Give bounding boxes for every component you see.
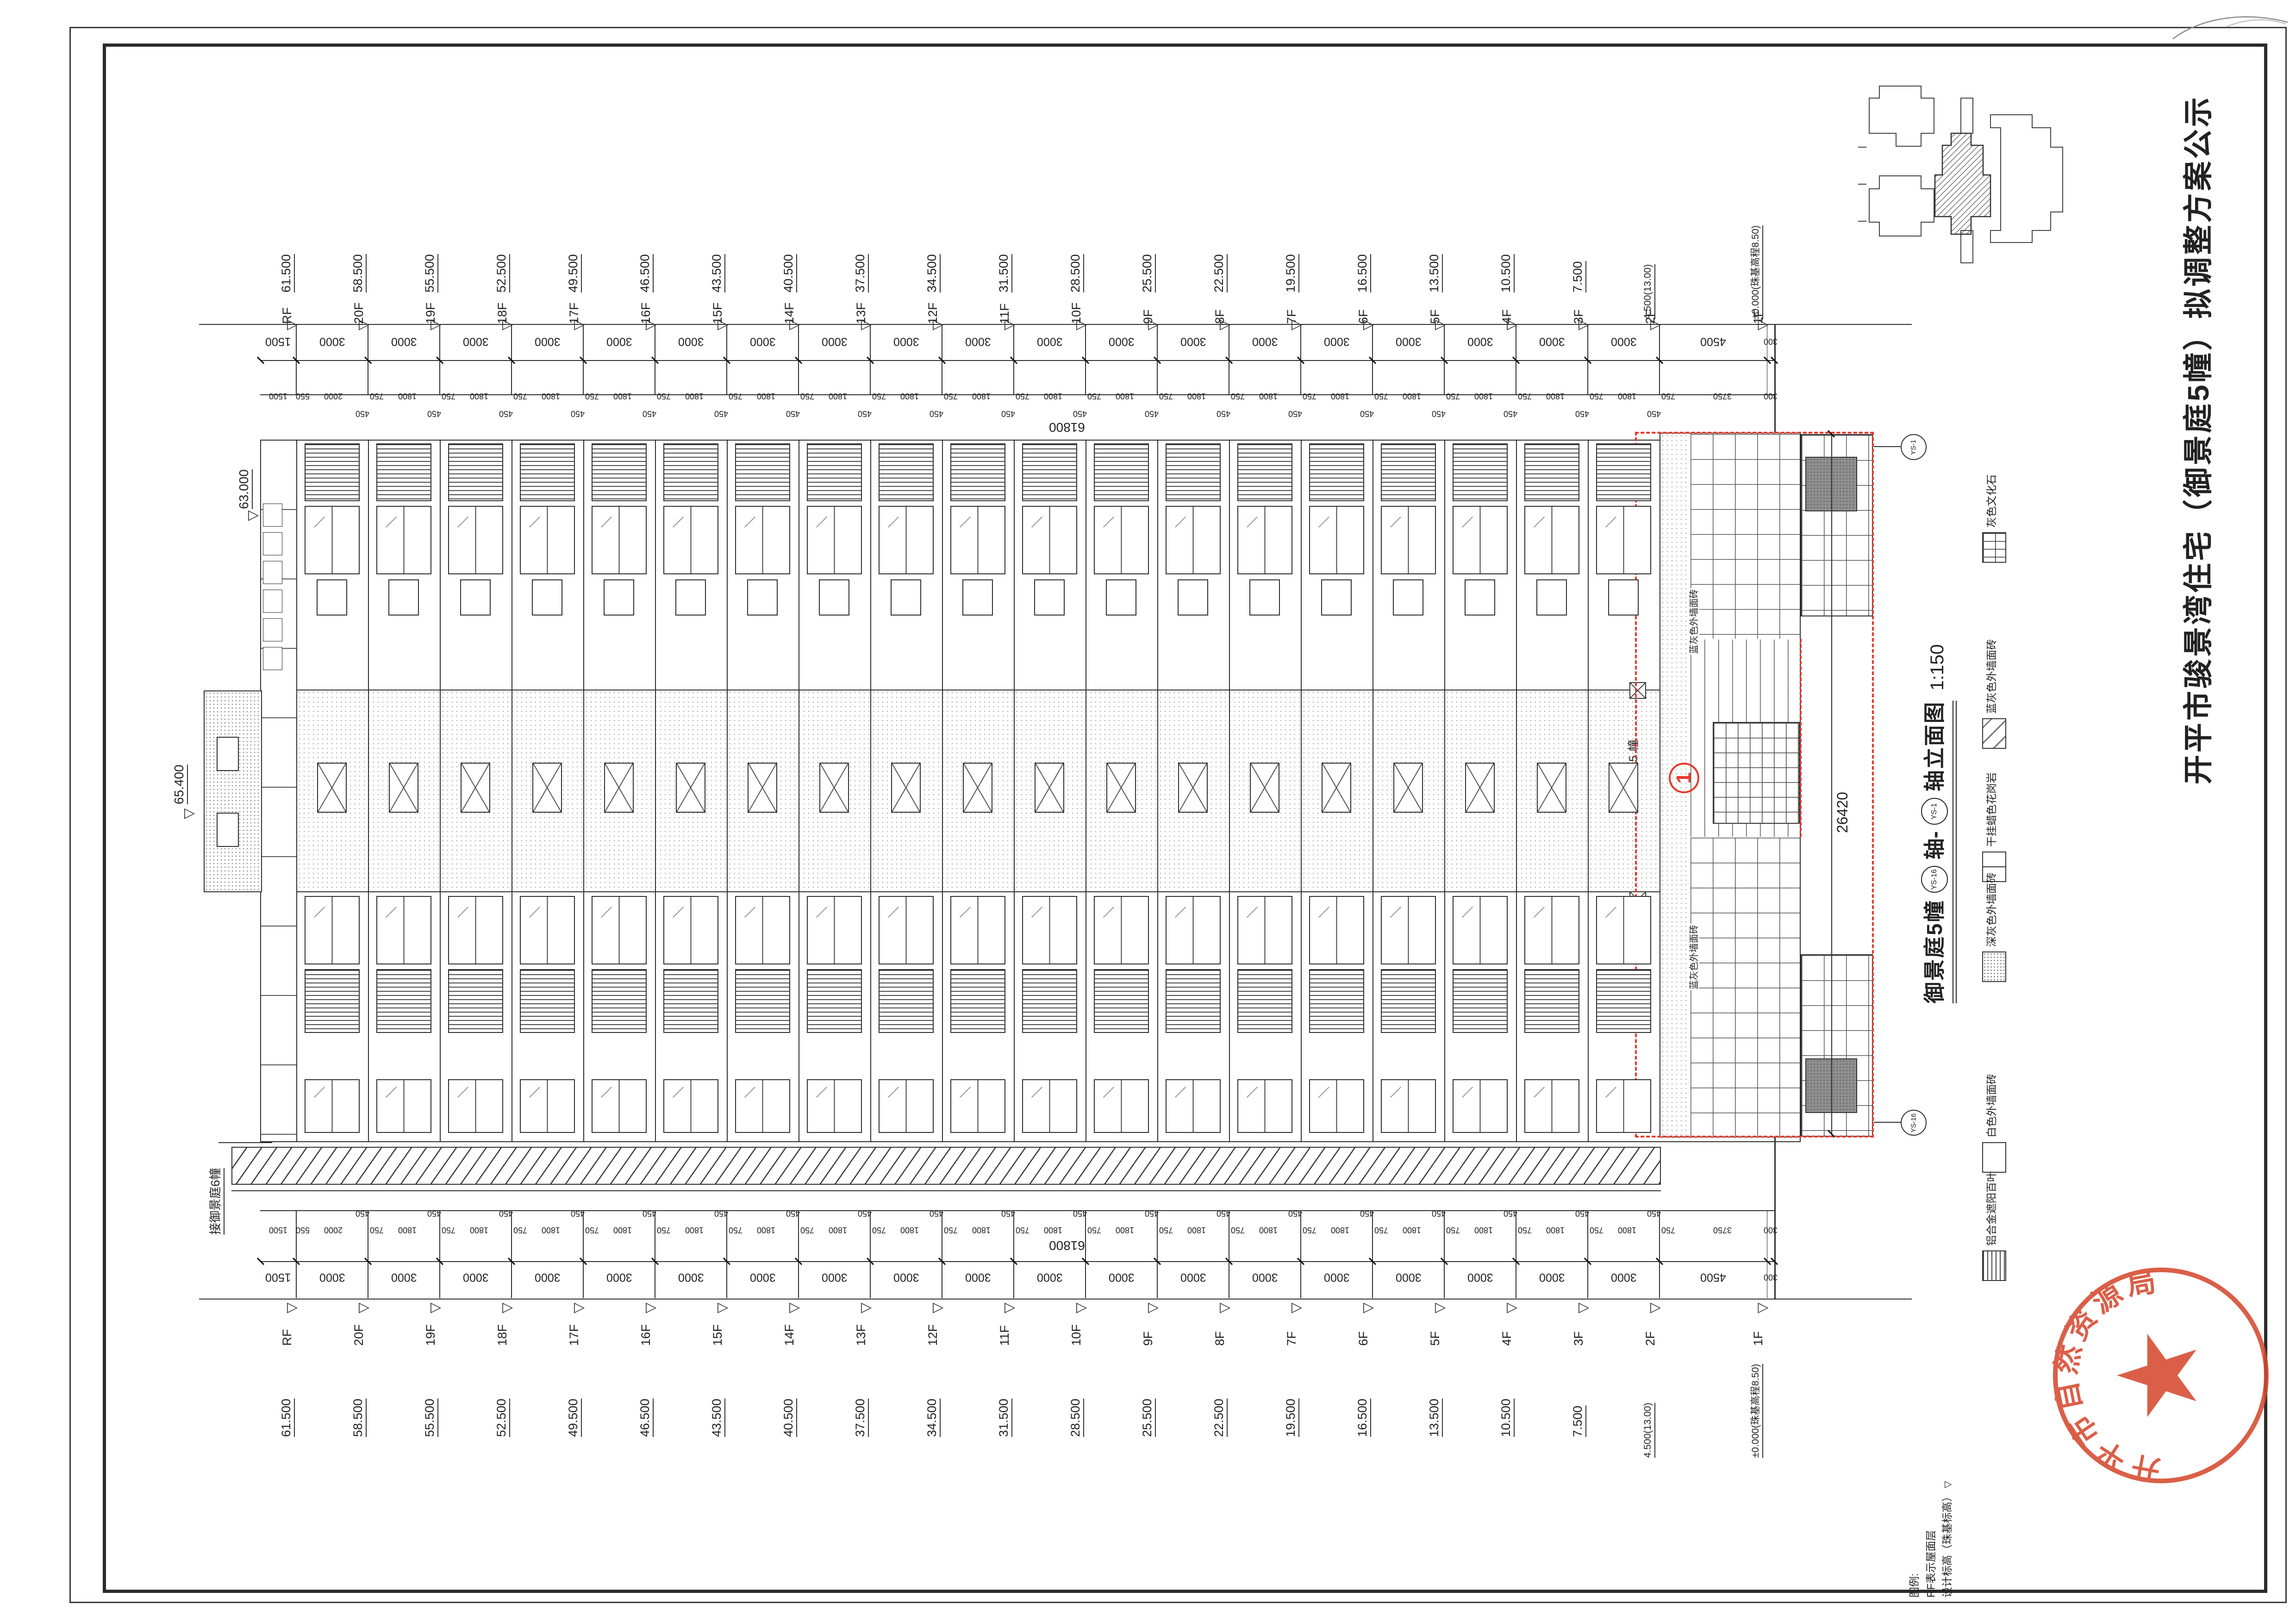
dim-cell: 450 [1218, 402, 1229, 425]
dim-cell: 750 [512, 384, 530, 407]
section-marker: 1 [1669, 763, 1699, 793]
dim-value: 450 [1575, 1208, 1589, 1218]
dim-cell: 750 [368, 1218, 386, 1241]
dim-cell: 750 [870, 384, 888, 407]
dim-cell: 450 [1075, 402, 1086, 425]
floor-slab-line [1157, 440, 1158, 1142]
floor-slab-line [1588, 440, 1589, 1142]
dim-cell: 3000 [1157, 1265, 1229, 1288]
dim-value: 3000 [319, 1270, 345, 1284]
floor-level: 25.500 [1141, 1399, 1156, 1437]
dim-value: 450 [1288, 1208, 1302, 1218]
dim-value: 450 [1504, 409, 1517, 418]
window [376, 443, 431, 501]
floor-label: 7F [1285, 1331, 1298, 1346]
dim-value: 3000 [1252, 1270, 1278, 1284]
dim-cell: 450 [788, 1201, 799, 1225]
dim-value: 1800 [972, 391, 991, 401]
dim-cell: 1800 [458, 1218, 501, 1241]
window [1596, 443, 1651, 501]
dim-value: 450 [1360, 1208, 1374, 1218]
dim-cell: 450 [1147, 402, 1157, 425]
dim-value: 3000 [319, 335, 345, 348]
window [735, 969, 790, 1033]
floor-level: 10.500 [1499, 254, 1515, 292]
window [448, 443, 503, 501]
window [950, 969, 1005, 1033]
floor-label: 10F [1070, 1324, 1083, 1346]
floor-slab-line [942, 440, 943, 1142]
dim-value: 450 [1288, 409, 1302, 418]
dim-value: 1800 [542, 391, 560, 401]
dim-value: 750 [1159, 391, 1173, 401]
dim-cell: 450 [1505, 1201, 1516, 1225]
window [1237, 443, 1292, 501]
dim-value: 750 [1446, 391, 1460, 401]
dim-value: 450 [1432, 409, 1446, 418]
floor-level: 37.500 [854, 254, 869, 292]
window [1309, 896, 1364, 964]
floor-level: 31.500 [997, 254, 1012, 292]
dim-value: 3000 [1611, 335, 1637, 348]
dim-cell: 450 [1147, 1201, 1157, 1225]
window [663, 969, 718, 1033]
floor-level: 46.500 [638, 1399, 654, 1437]
window [1453, 1079, 1508, 1133]
dim-value: 450 [571, 409, 585, 418]
window [807, 443, 862, 501]
floor-label: 17F [568, 1324, 580, 1346]
window [1393, 579, 1423, 616]
dim-value: 750 [729, 391, 742, 401]
dim-cell: 1500 [261, 1218, 297, 1241]
level-triangle-icon: ▷ [1435, 1300, 1446, 1314]
notes-block: 图例: RF表示屋面层 设计标高（珠基标高） ▽ [1906, 1481, 1956, 1598]
floor-level: 37.500 [854, 1399, 869, 1437]
floor-label: 12F [926, 1324, 939, 1346]
dim-cell: 450 [1290, 1201, 1301, 1225]
dim-cell: 4500 [1660, 1265, 1767, 1288]
dim-cell: 1500 [261, 1265, 297, 1288]
dim-value: 750 [585, 391, 599, 401]
dim-value: 750 [944, 391, 958, 401]
dim-cell: 1800 [888, 1218, 931, 1241]
dim-value: 750 [1016, 1225, 1029, 1235]
dim-cell: 1800 [458, 384, 501, 407]
dim-cell: 1800 [386, 384, 429, 407]
dim-cell: 1800 [1534, 1218, 1577, 1241]
dim-value: 450 [1145, 409, 1159, 418]
dim-cell: 3750 [1678, 1218, 1767, 1241]
dim-cell: 450 [1218, 1201, 1229, 1225]
roof-stair-window [263, 561, 282, 584]
dim-cell: 300 [1767, 384, 1775, 407]
window [807, 969, 862, 1033]
dim-value: 3750 [1713, 1225, 1732, 1235]
dim-cell: 450 [1003, 1201, 1014, 1225]
dim-cell: 3000 [1444, 1265, 1516, 1288]
dim-value: 450 [1073, 1208, 1087, 1218]
dim-value: 1800 [1259, 1225, 1278, 1235]
dim-value: 1800 [1259, 391, 1278, 401]
dim-value: 1800 [1403, 391, 1421, 401]
dim-cell: 750 [942, 384, 960, 407]
window [675, 579, 706, 616]
window [1166, 969, 1221, 1033]
window [1453, 896, 1508, 964]
floor-level: 34.500 [925, 254, 941, 292]
floor-label: 16F [639, 1324, 652, 1346]
floor-level: 61.500 [280, 1399, 295, 1437]
dim-cell: 450 [788, 402, 799, 425]
dim-cell: 3000 [1516, 1265, 1588, 1288]
dim-cell: 1800 [530, 384, 573, 407]
dim-value: 750 [1231, 1225, 1245, 1235]
dim-value: 1800 [757, 1225, 775, 1235]
window [1106, 763, 1136, 813]
window [950, 443, 1005, 501]
window [1166, 443, 1221, 501]
window [663, 896, 718, 964]
window [1094, 969, 1149, 1033]
dim-value: 750 [944, 1225, 958, 1235]
dim-cell: 3000 [583, 1265, 655, 1288]
floor-level: 25.500 [1141, 254, 1156, 292]
window [735, 506, 790, 574]
dim-value: 1800 [1116, 1225, 1134, 1235]
dim-value: 1500 [265, 1270, 291, 1284]
dim-value: 750 [1446, 1225, 1460, 1235]
floor-slab-line [727, 440, 728, 1142]
notes-rf: RF表示屋面层 [1923, 1481, 1940, 1598]
floor-slab-line [870, 440, 871, 1142]
window [305, 1079, 360, 1133]
dim-cell: 1800 [1319, 384, 1362, 407]
window [592, 969, 647, 1033]
dim-cell: 3000 [655, 330, 727, 353]
dim-value: 450 [356, 409, 369, 418]
drawing-sheet: 开平市骏景湾住宅（御景庭5幢）拟调整方案公示 [0, 0, 2296, 1623]
dim-cell: 3000 [799, 1265, 870, 1288]
floor-label: 3F [1572, 1331, 1585, 1346]
window [1166, 1079, 1221, 1133]
dim-value: 3000 [463, 1270, 489, 1284]
dim-cell: 750 [727, 384, 745, 407]
dim-value: 3000 [535, 335, 561, 348]
dim-cell: 750 [942, 1218, 960, 1241]
dim-value: 750 [800, 1225, 814, 1235]
dim-value: 450 [356, 1208, 369, 1218]
dim-value: 1800 [1474, 1225, 1493, 1235]
window [520, 1079, 575, 1133]
floor-level: 43.500 [710, 1399, 725, 1437]
dim-cell: 450 [860, 402, 870, 425]
dim-cell: 450 [931, 402, 942, 425]
window [879, 969, 934, 1033]
dim-cell: 1800 [745, 384, 788, 407]
dim-value: 750 [370, 1225, 384, 1235]
floor-level: 22.500 [1212, 1399, 1228, 1437]
dim-value: 300 [1764, 1272, 1778, 1282]
dim-cell: 750 [368, 384, 386, 407]
dim-cell: 750 [440, 384, 458, 407]
floor-level: 34.500 [925, 1399, 941, 1437]
window [1309, 1079, 1364, 1133]
window [376, 896, 431, 964]
dim-value: 750 [657, 1225, 671, 1235]
window [1596, 506, 1651, 574]
dim-value: 450 [1504, 1208, 1517, 1218]
dim-value: 450 [858, 409, 872, 418]
dim-cell: 4500 [1660, 330, 1767, 353]
level-triangle-icon: ▷ [1758, 1300, 1769, 1314]
dim-value: 450 [714, 1208, 728, 1218]
window [592, 896, 647, 964]
dim-value: 750 [872, 391, 886, 401]
dim-cell: 3000 [1373, 1265, 1444, 1288]
window [305, 506, 360, 574]
floor-slab-line [799, 440, 799, 1142]
window [748, 763, 777, 813]
window [1381, 969, 1436, 1033]
window [1596, 1079, 1651, 1133]
window [1022, 506, 1077, 574]
window [735, 896, 790, 964]
dim-value: 750 [442, 1225, 455, 1235]
level-triangle-icon: ▷ [1004, 1300, 1015, 1314]
dim-cell: 750 [1444, 1218, 1462, 1241]
window [747, 579, 778, 616]
window [1524, 443, 1579, 501]
level-triangle-icon: ▷ [861, 1300, 872, 1314]
window [1022, 969, 1077, 1033]
level-triangle-icon: ▷ [933, 1300, 943, 1314]
dim-value: 550 [296, 391, 310, 401]
dim-cell: 1500 [261, 330, 297, 353]
window [376, 969, 431, 1033]
dim-value: 450 [1647, 1208, 1661, 1218]
window [305, 443, 360, 501]
dim-value: 3000 [822, 1270, 848, 1284]
floor-level: 43.500 [710, 254, 725, 292]
floor-label: 18F [496, 1324, 509, 1346]
dim-cell: 750 [1157, 1218, 1175, 1241]
dim-value: 750 [1231, 391, 1245, 401]
dim-value: 750 [872, 1225, 886, 1235]
floor-level: 31.500 [997, 1399, 1012, 1437]
dim-value: 3000 [1037, 1270, 1063, 1284]
dim-value: 450 [930, 1208, 943, 1218]
dim-cell: 750 [583, 384, 601, 407]
roof-stair-window [263, 618, 282, 641]
window [532, 763, 562, 813]
dim-value: 1800 [1187, 391, 1206, 401]
dim-value: 450 [427, 409, 441, 418]
window [1237, 969, 1292, 1033]
drawing-scale: 1:150 [1928, 644, 1947, 690]
floor-slab-line [440, 440, 441, 1142]
floor-level: ±0.000(珠基高程8.50) [1751, 225, 1763, 319]
dim-value: 1800 [1116, 391, 1134, 401]
dim-cell: 3000 [512, 1265, 583, 1288]
legend-item-label: 灰色文化石 [1986, 474, 1997, 528]
window [1166, 896, 1221, 964]
window [448, 896, 503, 964]
dim-value: 3000 [1396, 335, 1422, 348]
dim-cell: 1800 [960, 1218, 1003, 1241]
floor-level: 4.500(13.00) [1643, 1403, 1655, 1458]
dim-value: 3000 [893, 1270, 919, 1284]
floor-label: 9F [1142, 1331, 1154, 1346]
dim-cell: 3000 [1086, 1265, 1157, 1288]
dim-cell: 450 [573, 402, 583, 425]
floor-level: 10.500 [1499, 1399, 1515, 1437]
dim-value: 1800 [685, 391, 704, 401]
floor-level: 28.500 [1069, 254, 1084, 292]
dim-cell: 450 [501, 402, 512, 425]
window [1536, 579, 1567, 616]
dim-value: 1800 [829, 1225, 847, 1235]
dim-cell: 3000 [368, 330, 440, 353]
dim-cell: 3000 [870, 330, 942, 353]
dim-cell: 450 [1505, 402, 1516, 425]
dim-cell: 750 [1086, 1218, 1104, 1241]
window [735, 443, 790, 501]
dim-value: 1800 [613, 1225, 632, 1235]
floor-level: 16.500 [1356, 1399, 1371, 1437]
dim-cell: 450 [716, 402, 727, 425]
dim-value: 3000 [750, 1270, 776, 1284]
dim-cell: 3000 [512, 330, 583, 353]
dim-value: 1800 [1331, 391, 1349, 401]
window [1381, 443, 1436, 501]
roof-stair-window [263, 532, 282, 555]
dim-value: 1800 [1618, 391, 1636, 401]
window [592, 443, 647, 501]
floor-level: 58.500 [351, 1399, 367, 1437]
dim-cell: 1800 [1391, 384, 1434, 407]
window [376, 1079, 431, 1133]
dim-value: 1800 [1044, 391, 1062, 401]
dim-value: 750 [1087, 1225, 1101, 1235]
dim-cell: 750 [1660, 384, 1678, 407]
dim-cell: 1800 [1104, 1218, 1147, 1241]
machine-room-block [204, 690, 262, 892]
dim-cell: 450 [429, 402, 440, 425]
dim-value: 750 [1087, 391, 1101, 401]
notes-level-text: 设计标高（珠基标高） [1941, 1491, 1953, 1598]
key-plan [1852, 78, 2083, 300]
dim-cell: 1800 [817, 384, 860, 407]
window [520, 443, 575, 501]
dim-value: 1800 [1403, 1225, 1421, 1235]
window [1537, 763, 1566, 813]
dim-value: 450 [499, 1208, 513, 1218]
level-triangle-icon: ▷ [574, 1300, 585, 1314]
dim-cell: 750 [1086, 384, 1104, 407]
window [448, 1079, 503, 1133]
section-dim-line [1831, 434, 1832, 1135]
floor-label: 1F [1752, 1331, 1765, 1346]
window [1166, 506, 1221, 574]
dim-cell: 750 [1444, 384, 1462, 407]
dim-cell: 750 [440, 1218, 458, 1241]
window [317, 763, 347, 813]
dim-cell: 750 [655, 1218, 673, 1241]
dim-cell: 550 [296, 384, 309, 407]
window [676, 763, 705, 813]
dim-value: 750 [442, 391, 455, 401]
axis-bubble-top: YS-1 [1901, 434, 1927, 460]
window [1094, 506, 1149, 574]
axis-bubble-end: YS-1 [1921, 798, 1948, 825]
window [1393, 763, 1423, 813]
legend-swatch-louver [1982, 1250, 2006, 1281]
dim-value: 450 [714, 409, 728, 418]
dim-cell: 750 [870, 1218, 888, 1241]
dim-cell: 3000 [440, 330, 512, 353]
dim-value: 1800 [829, 391, 847, 401]
dim-value: 450 [1647, 409, 1661, 418]
dim-value: 1800 [1546, 1225, 1565, 1235]
dim-band-line [260, 1261, 1775, 1262]
window [962, 579, 993, 616]
window [1178, 579, 1208, 616]
floor-slab-line [1086, 440, 1086, 1142]
dim-cell: 3000 [727, 1265, 799, 1288]
floor-label: 4F [1500, 1331, 1513, 1346]
dim-value: 3000 [391, 335, 417, 348]
dim-value: 3000 [1324, 1270, 1350, 1284]
legend-item-label: 深灰色外墙面砖 [1986, 872, 1997, 947]
window [317, 579, 347, 616]
floor-level: 22.500 [1212, 254, 1228, 292]
roof-stair-window [263, 504, 282, 527]
dim-band-line [260, 1210, 1775, 1211]
window [819, 579, 849, 616]
dim-value: 1800 [542, 1225, 560, 1235]
dim-value: 750 [370, 391, 384, 401]
dim-value: 450 [643, 409, 656, 418]
ground-line [231, 1190, 1661, 1191]
dim-cell: 450 [860, 1201, 870, 1225]
dim-value: 3000 [1252, 335, 1278, 348]
dim-value: 750 [1590, 1225, 1603, 1235]
dim-cell: 450 [573, 1201, 583, 1225]
dim-cell: 450 [1434, 402, 1444, 425]
level-triangle-icon: ▷ [1650, 1300, 1661, 1314]
dim-cell: 1800 [1606, 384, 1649, 407]
window [950, 1079, 1005, 1133]
drawing-title-project: 御景庭5幢 [1923, 899, 1946, 1003]
dim-value: 2000 [324, 1225, 343, 1235]
window [604, 579, 634, 616]
dim-value: 750 [800, 391, 814, 401]
floor-level: ±0.000(珠基高程8.50) [1751, 1364, 1763, 1458]
dim-cell: 3000 [368, 1265, 440, 1288]
legend-item-label: 白色外墙面砖 [1986, 1074, 1997, 1138]
machine-room-window [217, 737, 239, 771]
window [807, 896, 862, 964]
window [1381, 896, 1436, 964]
floor-slab-line [368, 440, 369, 1142]
window [1022, 896, 1077, 964]
legend-swatch-stipple [1982, 951, 2006, 982]
window [448, 969, 503, 1033]
window [305, 969, 360, 1033]
dim-cell: 450 [357, 1201, 368, 1225]
key-plan-highlighted-building [1935, 133, 1990, 234]
